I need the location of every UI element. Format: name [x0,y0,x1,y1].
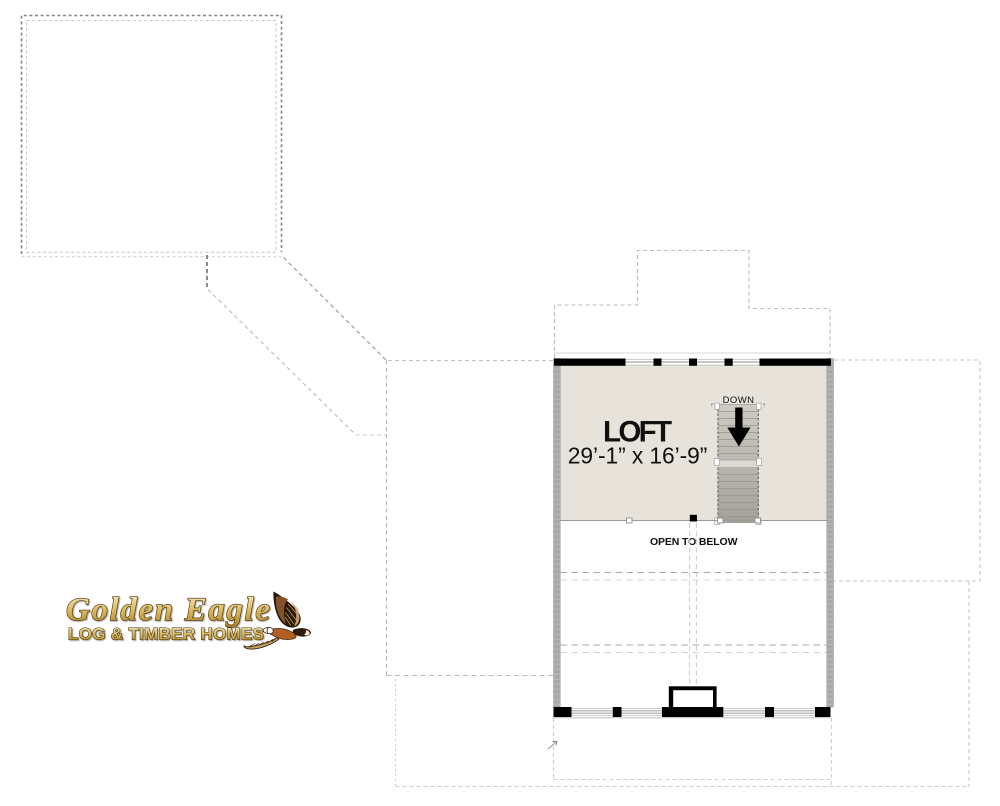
svg-text:DOWN: DOWN [723,395,755,406]
svg-text:LOG & TIMBER HOMES: LOG & TIMBER HOMES [68,625,264,644]
svg-text:29’-1” x 16’-9”: 29’-1” x 16’-9” [568,442,708,468]
svg-text:Golden Eagle: Golden Eagle [66,592,270,628]
svg-text:OPEN TO BELOW: OPEN TO BELOW [650,536,738,548]
